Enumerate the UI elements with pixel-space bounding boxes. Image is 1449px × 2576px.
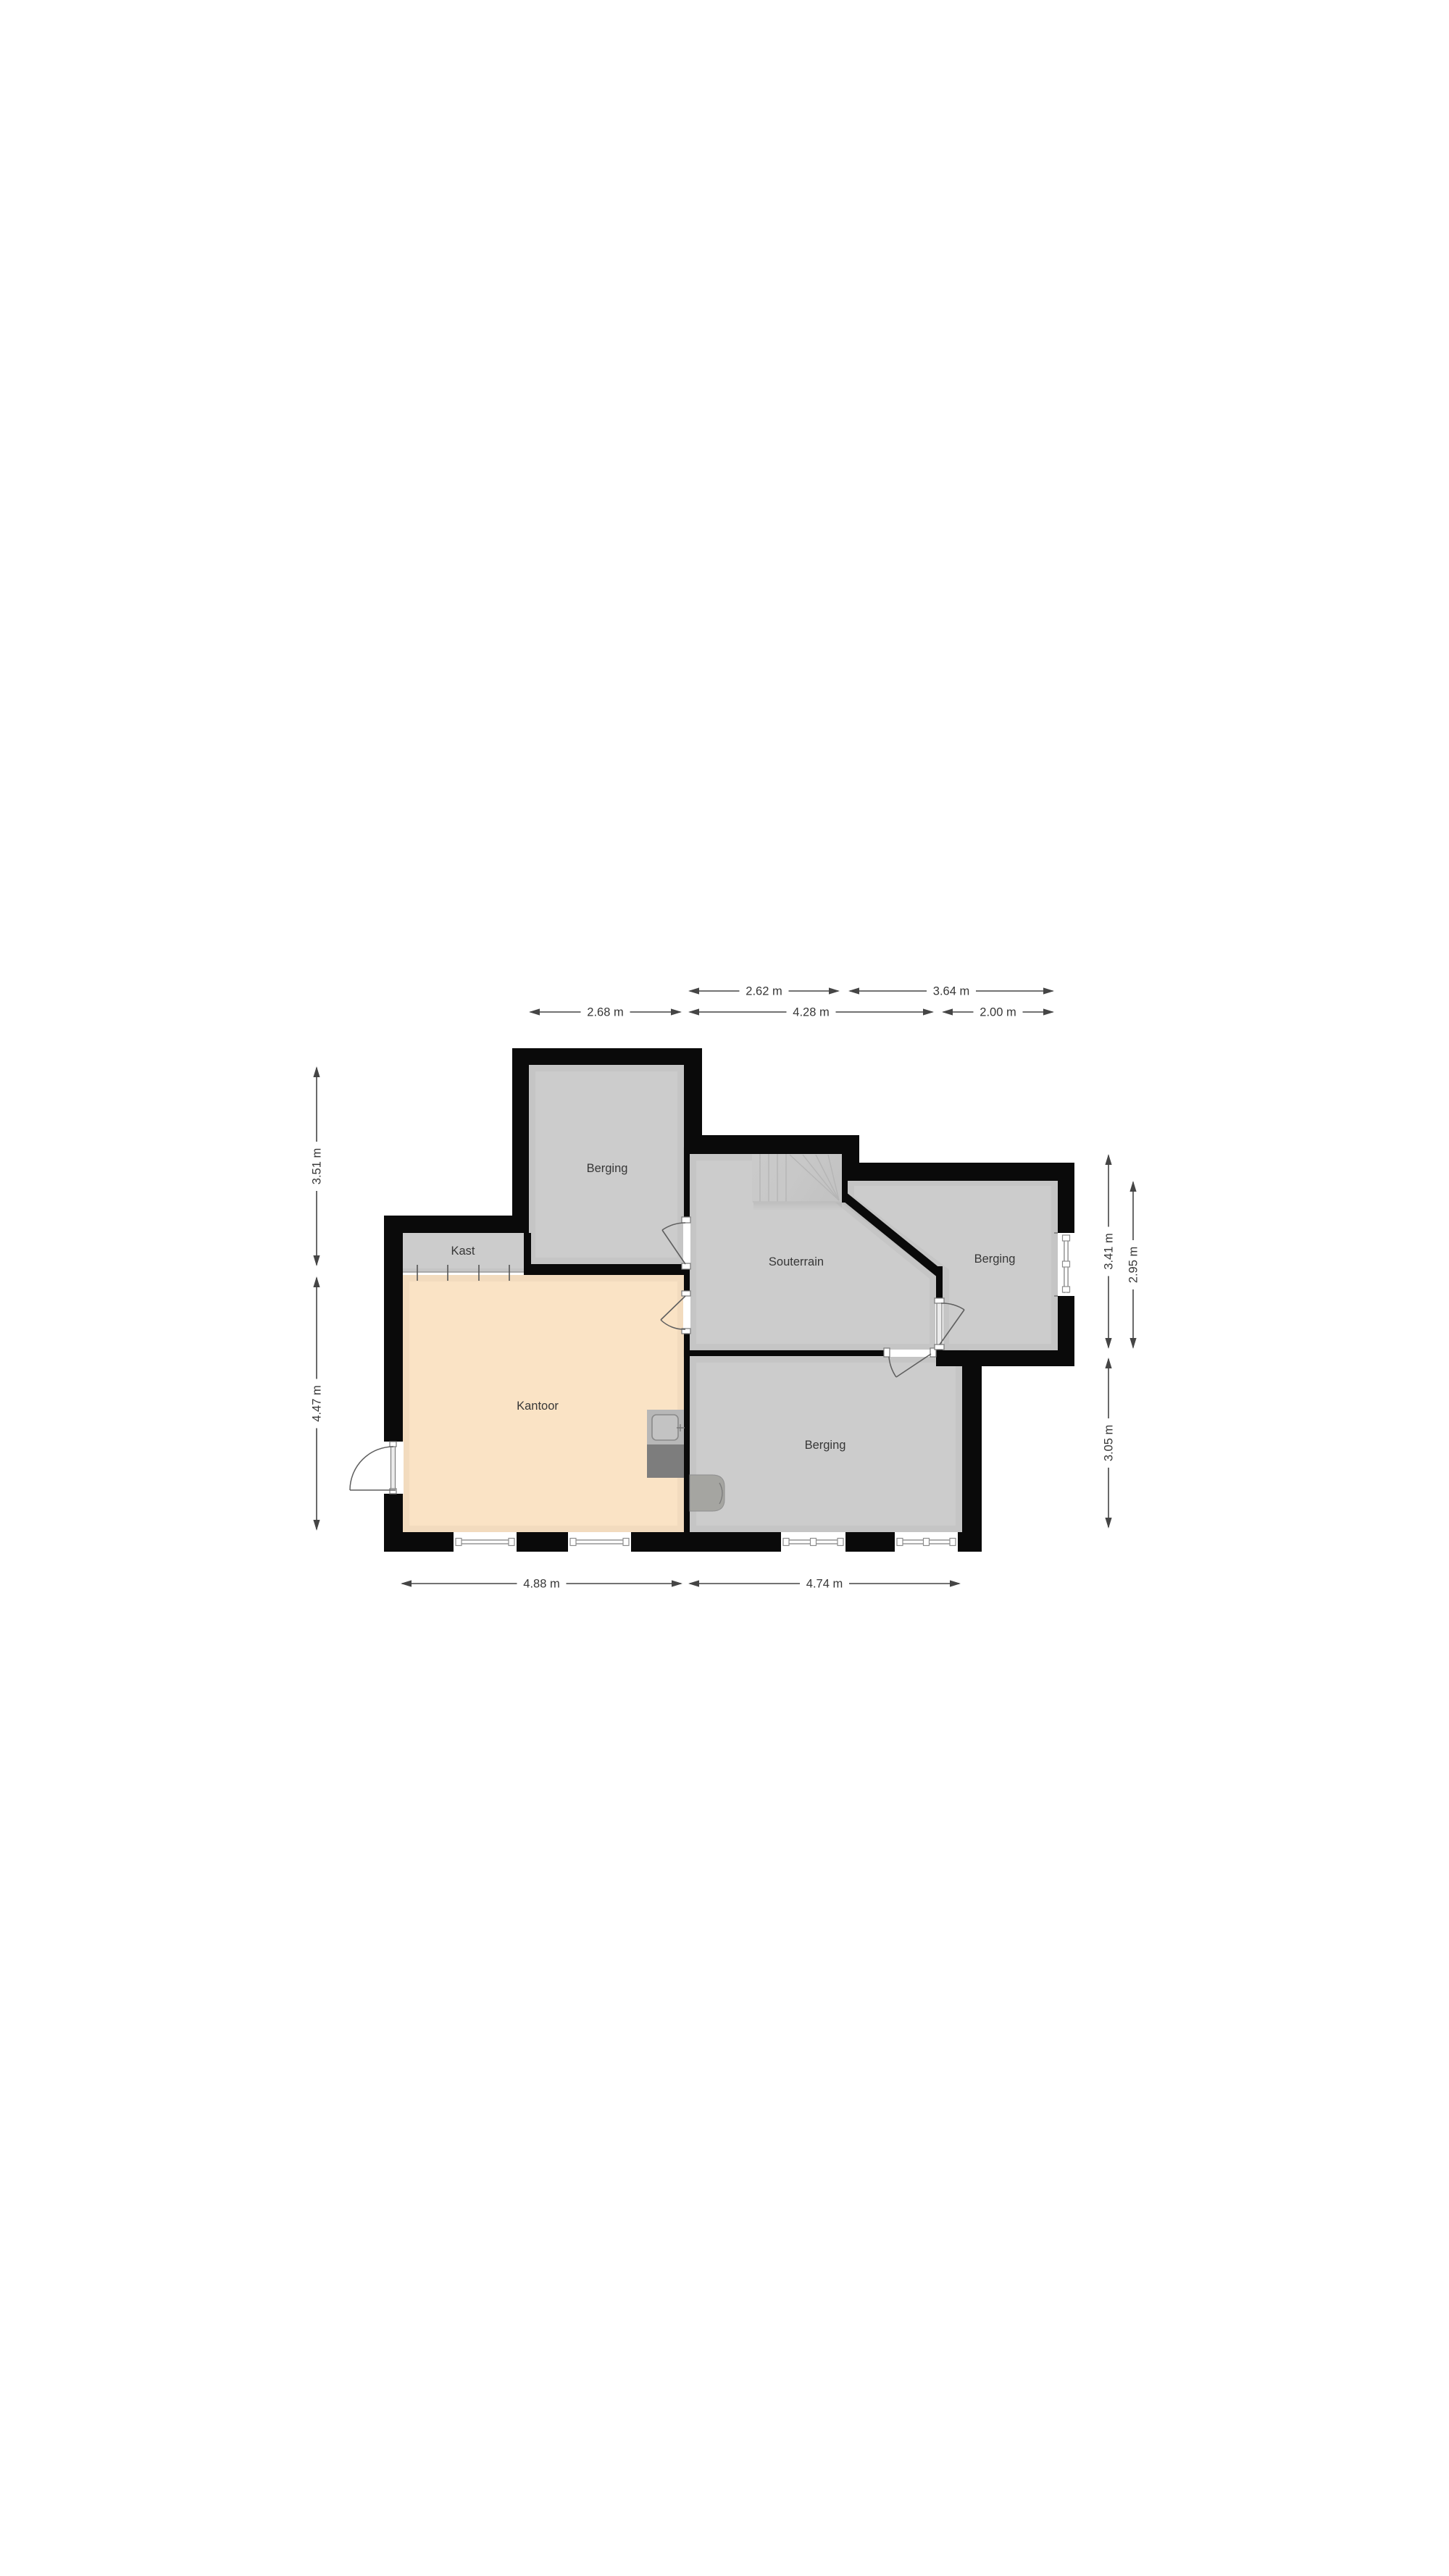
svg-text:2.95 m: 2.95 m bbox=[1127, 1247, 1140, 1283]
svg-text:3.51 m: 3.51 m bbox=[311, 1148, 324, 1184]
svg-text:2.62 m: 2.62 m bbox=[746, 985, 782, 998]
svg-text:2.00 m: 2.00 m bbox=[980, 1006, 1016, 1019]
svg-text:Berging: Berging bbox=[587, 1162, 628, 1175]
svg-text:Berging: Berging bbox=[974, 1253, 1016, 1266]
svg-text:Kast: Kast bbox=[451, 1245, 475, 1258]
svg-text:3.41 m: 3.41 m bbox=[1103, 1233, 1116, 1269]
svg-text:3.64 m: 3.64 m bbox=[933, 985, 969, 998]
svg-text:3.05 m: 3.05 m bbox=[1103, 1425, 1116, 1461]
svg-text:Kantoor: Kantoor bbox=[517, 1400, 559, 1413]
svg-text:4.88 m: 4.88 m bbox=[523, 1578, 559, 1591]
svg-text:4.47 m: 4.47 m bbox=[311, 1385, 324, 1421]
svg-text:4.28 m: 4.28 m bbox=[793, 1006, 829, 1019]
svg-text:Berging: Berging bbox=[805, 1439, 846, 1452]
svg-text:4.74 m: 4.74 m bbox=[806, 1578, 843, 1591]
svg-text:Souterrain: Souterrain bbox=[769, 1255, 824, 1268]
svg-text:2.68 m: 2.68 m bbox=[587, 1006, 623, 1019]
